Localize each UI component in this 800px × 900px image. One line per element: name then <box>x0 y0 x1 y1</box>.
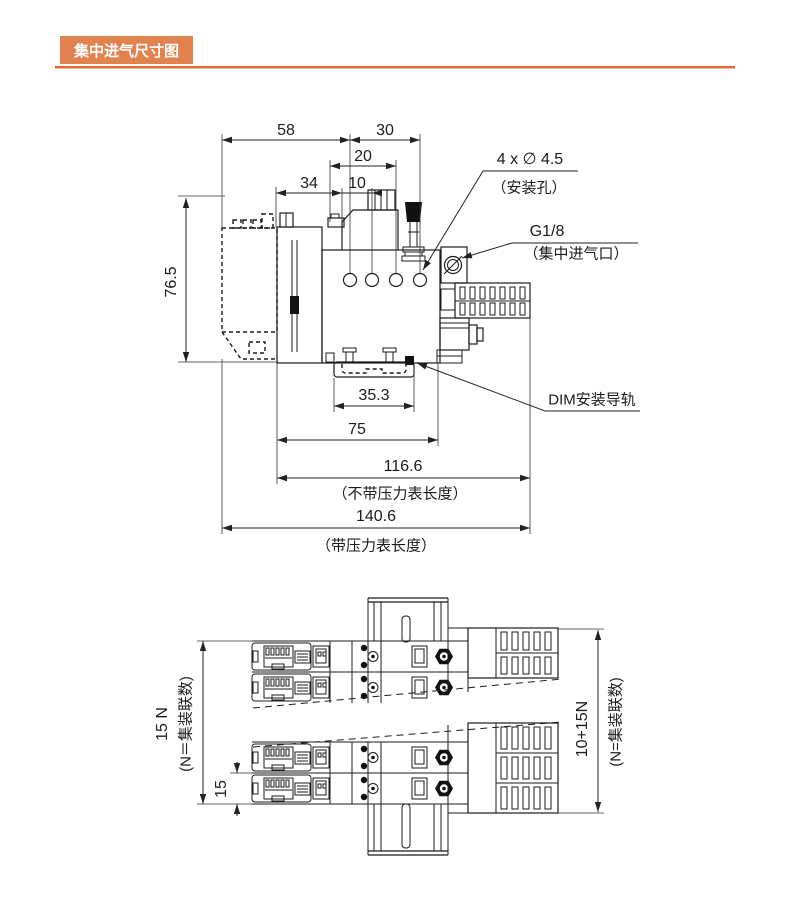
datasheet-page: 集中进气尺寸图 <box>0 0 800 900</box>
note-with-gauge: （带压力表长度） <box>316 539 436 554</box>
label-mounting-holes-note: （安装孔） <box>491 181 566 196</box>
label-din-rail: DIM安装导轨 <box>548 393 636 408</box>
dim-116-6: 116.6 <box>384 459 423 475</box>
line-art <box>0 0 800 900</box>
dim-10-15n: 10+15N <box>575 701 591 758</box>
dim-15: 15 <box>214 780 230 798</box>
dim-34: 34 <box>300 176 318 192</box>
dim-10: 10 <box>348 176 366 192</box>
dim-58: 58 <box>277 123 295 139</box>
label-mounting-holes: 4 x ∅ 4.5 <box>497 152 563 168</box>
label-inlet-port: G1/8 <box>530 224 565 240</box>
dim-10-15n-note: (N=集装联数) <box>609 677 624 767</box>
dim-76-5: 76.5 <box>164 266 180 297</box>
dim-35-3: 35.3 <box>358 388 389 404</box>
dim-30: 30 <box>376 123 394 139</box>
dim-75: 75 <box>348 422 366 438</box>
dim-15n: 15 N <box>155 707 171 741</box>
dim-15n-note: (N＝集装联数) <box>179 676 194 772</box>
dim-20: 20 <box>354 149 372 165</box>
label-inlet-port-note: （集中进气口） <box>523 247 628 262</box>
note-no-gauge: （不带压力表长度） <box>332 487 467 502</box>
top-view-drawing <box>197 598 604 855</box>
dim-140-6: 140.6 <box>356 509 396 525</box>
